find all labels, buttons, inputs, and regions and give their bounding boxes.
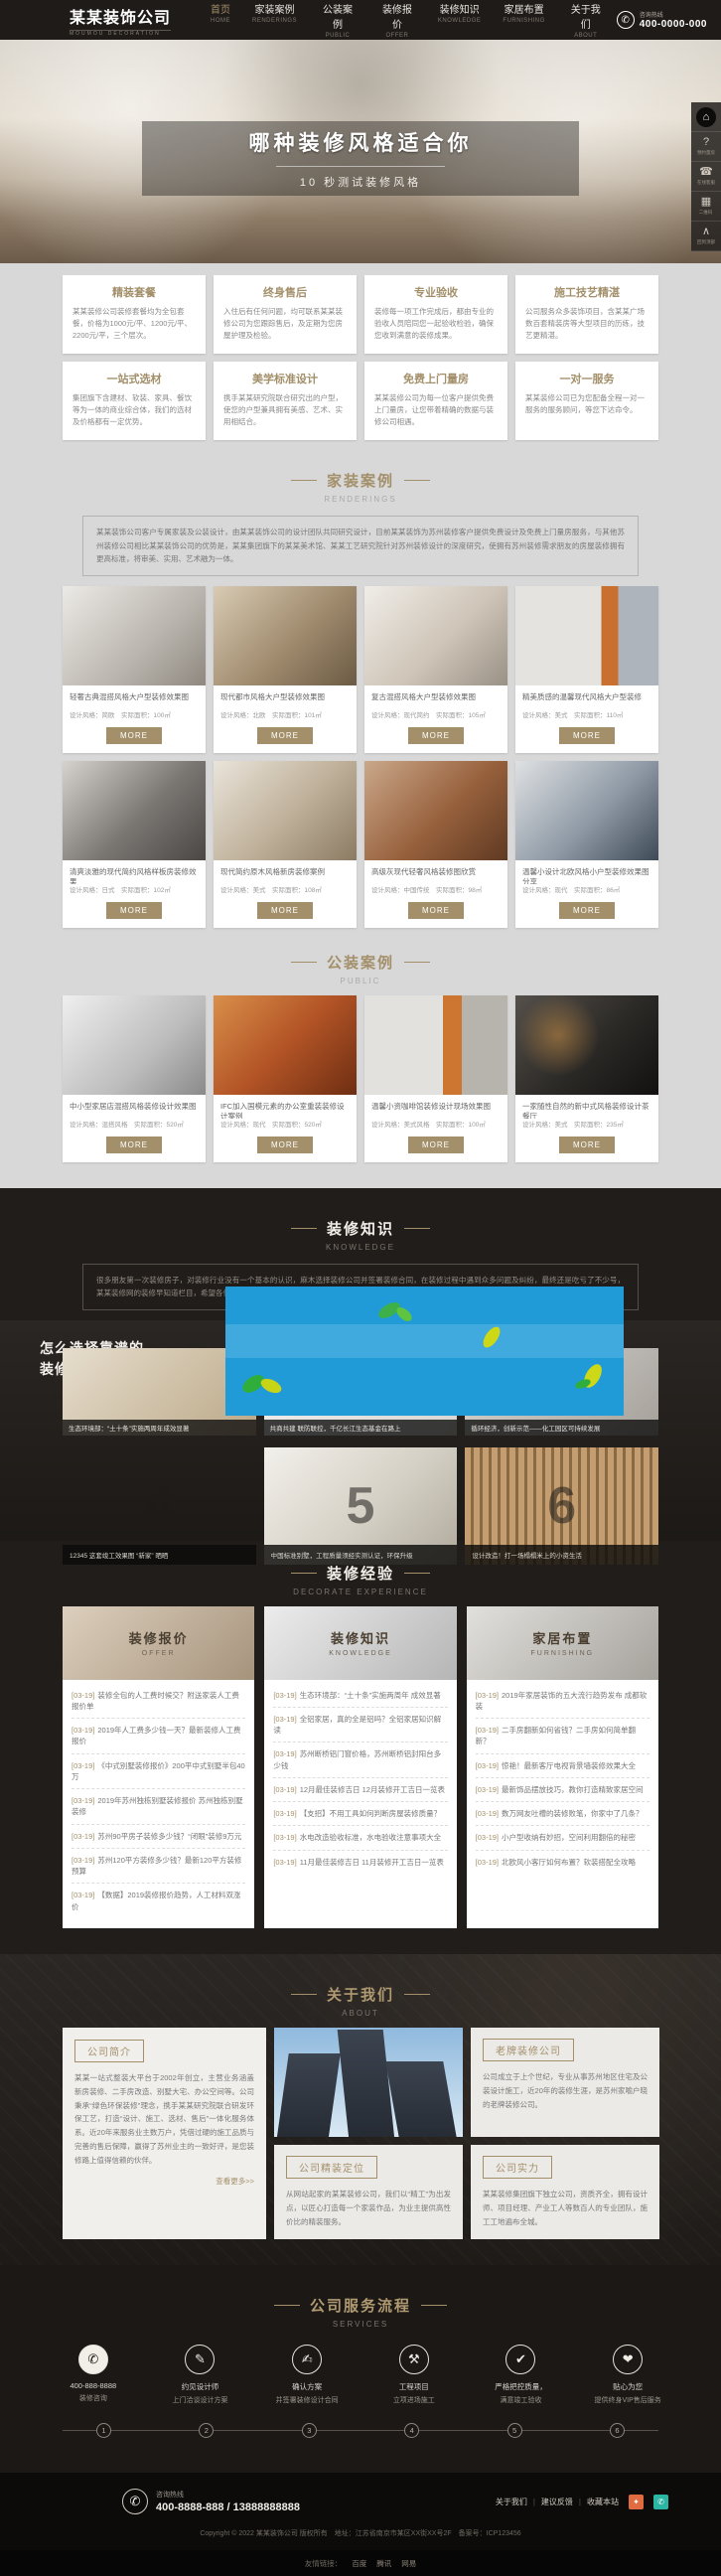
case-card[interactable]: 温馨小资咖啡馆装修设计现场效果图 设计风格：美式风格 实际面积：100㎡ MOR… xyxy=(364,995,507,1162)
link-separator: | xyxy=(533,2498,535,2506)
hero-title: 哪种装修风格适合你 xyxy=(249,127,473,157)
case-photo xyxy=(515,761,658,860)
heading-dash xyxy=(404,1994,430,1995)
heading-dash xyxy=(291,1228,317,1229)
article-link[interactable]: [03-19]生态环境部：“土十条”实施两周年 成效显著 xyxy=(273,1684,447,1708)
video-placeholder[interactable] xyxy=(225,1287,624,1416)
floating-toolbar: ⌂ ? 预约量房 ☎ 在线客服 ▦ 二维码 ∧ 回到顶部 xyxy=(691,102,721,251)
section-heading-services: 公司服务流程 SERVICES xyxy=(0,2279,721,2339)
article-link[interactable]: [03-19]2019年苏州独栋别墅装修报价 苏州独栋别墅装修 xyxy=(72,1789,245,1825)
case-photo xyxy=(63,995,206,1095)
main-nav: 首页 HOME 家装案例 RENDERINGS 公装案例 PUBLIC 装修报价… xyxy=(211,1,605,39)
feature-card: 免费上门量房 某某装修公司为每一位客户提供免费上门量房，让您带着精确的数据与装修… xyxy=(364,362,507,440)
leaf-icon xyxy=(374,1294,414,1328)
knowledge-banner: 怎么选择靠谱的 装修公司? 生态环境部：“土十条”实施两周年成效显著 共商共建 … xyxy=(0,1320,721,1541)
heading-dash xyxy=(404,1573,430,1574)
weibo-icon[interactable]: ✦ xyxy=(629,2495,644,2509)
article-link[interactable]: [03-19]苏州90平房子装修多少钱？“闭眼”装修9万元 xyxy=(72,1825,245,1849)
case-card[interactable]: 中小型家居店混搭风格装修设计效果图 设计风格：混搭风格 实际面积：520㎡ MO… xyxy=(63,995,206,1162)
experience-column-furnishing: 家居布置 FURNISHING [03-19]2019年家居装饰的五大流行趋势发… xyxy=(467,1606,658,1928)
case-photo xyxy=(515,586,658,685)
article-link[interactable]: [03-19]惊艳！最新客厅电视背景墙装修效果大全 xyxy=(476,1754,649,1778)
leaf-icon xyxy=(573,1356,613,1396)
more-button[interactable]: MORE xyxy=(106,902,162,919)
more-button[interactable]: MORE xyxy=(559,727,615,744)
carousel-slide[interactable]: 5 中国标准别墅，工程质量须经实测认证，环保升级 xyxy=(264,1447,458,1565)
qrcode-icon: ▦ xyxy=(701,197,711,208)
more-button[interactable]: MORE xyxy=(257,727,313,744)
step-number: 3 xyxy=(302,2423,317,2438)
case-card[interactable]: 现代简约原木风格新房装修案例 设计风格：美式 实际面积：108㎡ MORE xyxy=(214,761,357,928)
heading-dash xyxy=(291,962,317,963)
building-shape xyxy=(275,2053,340,2137)
about-grid: 公司简介 某某一站式整装大平台于2002年创立，主营业务涵盖新房装修、二手房改造… xyxy=(63,2028,658,2266)
company-intro-card: 公司简介 某某一站式整装大平台于2002年创立，主营业务涵盖新房装修、二手房改造… xyxy=(63,2028,266,2240)
case-card[interactable]: 高级灰现代轻奢风格装修图欣赏 设计风格：中国传统 实际面积：98㎡ MORE xyxy=(364,761,507,928)
knowledge-carousel: 4 12345 这套竣工效果图 “新家” 晒晒 5 中国标准别墅，工程质量须经实… xyxy=(63,1447,658,1565)
column-header[interactable]: 家居布置 FURNISHING xyxy=(467,1606,658,1680)
header-hotline: ✆ 咨询热线 400-0000-000 xyxy=(617,10,707,30)
case-photo xyxy=(515,995,658,1095)
article-link[interactable]: [03-19]水电改造验收标准，水电验收注意事项大全 xyxy=(273,1826,447,1850)
check-icon: ✔ xyxy=(505,2345,535,2374)
hero-banner[interactable]: 哪种装修风格适合你 10 秒测试装修风格 ⌂ ? 预约量房 ☎ 在线客服 ▦ 二… xyxy=(0,40,721,263)
heading-dash xyxy=(291,480,317,481)
case-photo xyxy=(214,761,357,860)
carousel-slide[interactable]: 4 12345 这套竣工效果图 “新家” 晒晒 xyxy=(63,1447,256,1565)
article-link[interactable]: [03-19]苏州120平方装修多少钱？最新120平方装修预算 xyxy=(72,1849,245,1885)
about-card-strength: 公司实力 某某装修集团旗下独立公司，资质齐全，拥有设计师、项目经理、产业工人等数… xyxy=(471,2145,659,2240)
heading-dash xyxy=(404,1228,430,1229)
logo-subtext: MOUMOU DECORATION xyxy=(70,30,171,37)
phone-icon: ✆ xyxy=(617,11,635,29)
more-button[interactable]: MORE xyxy=(257,902,313,919)
more-button[interactable]: MORE xyxy=(559,902,615,919)
article-link[interactable]: [03-19]装修全包的人工费时候交？附送家装人工费报价单 xyxy=(72,1684,245,1720)
feature-card: 专业验收 装修每一项工作完成后，都由专业的验收人员陪同您一起验收检验，确保您收到… xyxy=(364,275,507,354)
feature-section: 精装套餐 某某装修公司装修套餐均为全包套餐，价格为1000元/平、1200元/平… xyxy=(63,263,658,454)
phone-icon: ✆ xyxy=(78,2345,108,2374)
more-button[interactable]: MORE xyxy=(408,1136,464,1153)
experience-column-knowledge: 装修知识 KNOWLEDGE [03-19]生态环境部：“土十条”实施两周年 成… xyxy=(264,1606,456,1928)
feature-card: 施工技艺精湛 公司服务众多装饰项目，含某某广场数百套精装房等大型项目的历练，技艺… xyxy=(515,275,658,354)
service-step: ⚒ 工程项目 立项进场施工 xyxy=(363,2345,465,2405)
column-header[interactable]: 装修知识 KNOWLEDGE xyxy=(264,1606,456,1680)
leaf-icon xyxy=(239,1364,283,1404)
hotline-number: 400-0000-000 xyxy=(640,19,707,30)
feature-card: 精装套餐 某某装修公司装修套餐均为全包套餐，价格为1000元/平、1200元/平… xyxy=(63,275,206,354)
page: 某某装饰公司 MOUMOU DECORATION 首页 HOME 家装案例 RE… xyxy=(0,0,721,2576)
case-photo xyxy=(364,761,507,860)
heading-dash xyxy=(404,480,430,481)
more-button[interactable]: MORE xyxy=(106,1136,162,1153)
contract-icon: ✍ xyxy=(292,2345,322,2374)
tools-icon: ⚒ xyxy=(399,2345,429,2374)
service-step: ✍ 确认方案 并签署装修设计合同 xyxy=(256,2345,358,2405)
section-heading-public: 公装案例 PUBLIC xyxy=(0,936,721,995)
feature-card: 一对一服务 某某装修公司已为您配备全程一对一服务的服务顾问，等您下达命令。 xyxy=(515,362,658,440)
case-photo xyxy=(364,586,507,685)
step-number: 5 xyxy=(507,2423,522,2438)
more-button[interactable]: MORE xyxy=(257,1136,313,1153)
rail-home-button[interactable]: ⌂ xyxy=(691,102,721,132)
footer-link-about[interactable]: 关于我们 xyxy=(496,2497,527,2507)
building-shape xyxy=(385,2061,459,2137)
logo-text: 某某装饰公司 xyxy=(70,4,171,28)
article-link[interactable]: [03-19]12月最佳装修吉日 12月装修开工吉日一览表 xyxy=(273,1778,447,1802)
copyright: Copyright © 2022 某某装饰公司 版权所有 地址：江苏省南京市某区… xyxy=(0,2514,721,2550)
footer: ✆ 咨询热线 400-8888-888 / 13888888888 关于我们 |… xyxy=(0,2473,721,2576)
service-steps: ✆ 400-888-8888 装修咨询 ✎ 约见设计师 上门洽谈设计方案 ✍ 确… xyxy=(43,2345,678,2405)
case-card[interactable]: 现代都市风格大户型装修效果图 设计风格：北欧 实际面积：101㎡ MORE xyxy=(214,586,357,753)
step-number: 4 xyxy=(404,2423,419,2438)
leaf-icon xyxy=(474,1320,509,1354)
step-number: 6 xyxy=(610,2423,625,2438)
nav-item-public[interactable]: 公装案例 PUBLIC xyxy=(319,1,357,39)
footer-link-bookmark[interactable]: 收藏本站 xyxy=(587,2497,619,2507)
more-button[interactable]: MORE xyxy=(408,727,464,744)
case-card[interactable]: 一家随性自然的新中式风格装修设计茶餐厅 设计风格：美式 实际面积：235㎡ MO… xyxy=(515,995,658,1162)
nav-item-home[interactable]: 首页 HOME xyxy=(211,1,230,39)
feature-card: 一站式选材 集团旗下含建材、软装、家具、餐饮等为一体的商业综合体，我们的选材及价… xyxy=(63,362,206,440)
link-separator: | xyxy=(579,2498,581,2506)
article-link[interactable]: [03-19]11月最佳装修吉日 11月装修开工吉日一览表 xyxy=(273,1851,447,1874)
footer-link-feedback[interactable]: 建议反馈 xyxy=(541,2497,573,2507)
case-card[interactable]: 轻奢古典混搭风格大户型装修效果图 设计风格：简欧 实际面积：100㎡ MORE xyxy=(63,586,206,753)
rail-service-button[interactable]: ☎ 在线客服 xyxy=(691,162,721,192)
heart-icon: ❤ xyxy=(613,2345,643,2374)
step-number: 1 xyxy=(96,2423,111,2438)
article-link[interactable]: [03-19]数万网友吐槽的装修败笔，你家中了几条？ xyxy=(476,1802,649,1826)
nav-item-about[interactable]: 关于我们 ABOUT xyxy=(567,1,605,39)
header: 某某装饰公司 MOUMOU DECORATION 首页 HOME 家装案例 RE… xyxy=(0,0,721,40)
nav-item-knowledge[interactable]: 装修知识 KNOWLEDGE xyxy=(438,1,482,39)
article-link[interactable]: [03-19]小户型收纳有妙招，空间利用翻倍的秘密 xyxy=(476,1826,649,1850)
nav-item-furnishing[interactable]: 家居布置 FURNISHING xyxy=(503,1,544,39)
article-link[interactable]: [03-19]【支招】不用工具如何判断房屋装修质量？ xyxy=(273,1802,447,1826)
rail-qrcode-button[interactable]: ▦ 二维码 xyxy=(691,192,721,222)
about-card-history: 老牌装修公司 公司成立于上个世纪，专业从事苏州地区住宅及公装设计施工，近20年的… xyxy=(471,2028,659,2137)
friend-link[interactable]: 腾讯 xyxy=(376,2558,391,2569)
experience-column-offer: 装修报价 OFFER [03-19]装修全包的人工费时候交？附送家装人工费报价单… xyxy=(63,1606,254,1928)
video-strip xyxy=(225,1324,624,1358)
article-link[interactable]: [03-19]苏州断桥铝门窗价格，苏州断桥铝封阳台多少钱 xyxy=(273,1743,447,1778)
case-photo xyxy=(214,586,357,685)
heading-dash xyxy=(404,962,430,963)
experience-columns: 装修报价 OFFER [03-19]装修全包的人工费时候交？附送家装人工费报价单… xyxy=(63,1606,658,1954)
more-button[interactable]: MORE xyxy=(408,902,464,919)
section-heading-renderings: 家装案例 RENDERINGS xyxy=(0,454,721,514)
friend-link[interactable]: 网易 xyxy=(401,2558,416,2569)
nav-item-renderings[interactable]: 家装案例 RENDERINGS xyxy=(252,1,297,39)
case-card[interactable]: 温馨小设计北欧风格小户型装修效果图分享 设计风格：现代 实际面积：86㎡ MOR… xyxy=(515,761,658,928)
article-link[interactable]: [03-19]2019年家居装饰的五大流行趋势发布 成都软装 xyxy=(476,1684,649,1720)
case-photo xyxy=(63,586,206,685)
service-step: ✔ 严格把控质量， 满意竣工验收 xyxy=(471,2345,572,2405)
arrow-up-icon: ∧ xyxy=(702,227,710,237)
headset-icon: ☎ xyxy=(699,167,713,178)
pencil-icon: ✎ xyxy=(185,2345,215,2374)
about-card-position: 公司精装定位 从网站起家的某某装修公司，我们以“精工”为出发点，以匠心打造每一个… xyxy=(274,2145,463,2240)
question-icon: ? xyxy=(703,137,709,148)
step-number: 2 xyxy=(199,2423,214,2438)
more-button[interactable]: MORE xyxy=(559,1136,615,1153)
heading-dash xyxy=(291,1573,317,1574)
news-slider: 生态环境部：“土十条”实施两周年成效显著 共商共建 联防联控，千亿长江生态基金在… xyxy=(63,1348,658,1436)
case-card[interactable]: 精美质感的温馨现代风格大户型装修 设计风格：美式 实际面积：110㎡ MORE xyxy=(515,586,658,753)
carousel-slide[interactable]: 6 设计改造！打一场榻榻米上的小资生活 xyxy=(465,1447,658,1565)
case-photo xyxy=(63,761,206,860)
wechat-icon[interactable]: ✆ xyxy=(653,2495,668,2509)
hero-text-band: 哪种装修风格适合你 10 秒测试装修风格 xyxy=(142,121,579,196)
phone-icon: ✆ xyxy=(122,2489,148,2514)
renderings-intro-box: 某某装饰公司客户专属家装及公装设计，由某某装饰公司的设计团队共同研究设计，目前某… xyxy=(82,516,639,576)
building-photo xyxy=(274,2028,463,2137)
article-link[interactable]: [03-19]北欧风小客厅如何布置？软装搭配全攻略 xyxy=(476,1851,649,1874)
read-more-link[interactable]: 查看更多>> xyxy=(74,2176,254,2187)
hero-subtitle: 10 秒测试装修风格 xyxy=(276,166,445,190)
building-shape xyxy=(338,2030,396,2137)
section-heading-knowledge: 装修知识 KNOWLEDGE xyxy=(0,1202,721,1262)
case-card[interactable]: IFC加入国模元素的办公室重装装修设计案例 设计风格：现代 实际面积：520㎡ … xyxy=(214,995,357,1162)
case-photo xyxy=(214,995,357,1095)
footer-links: 关于我们 | 建议反馈 | 收藏本站 ✦ ✆ xyxy=(496,2495,668,2509)
case-card[interactable]: 清爽淡雅的现代简约风格样板房装修效果 设计风格：日式 实际面积：102㎡ MOR… xyxy=(63,761,206,928)
article-link[interactable]: [03-19]最新饰品摆放技巧，教你打造精致家居空间 xyxy=(476,1778,649,1802)
heading-dash xyxy=(274,2305,300,2306)
article-link[interactable]: [03-19]【数据】2019装修报价趋势，人工材料双涨价 xyxy=(72,1884,245,1918)
service-step: ❤ 贴心为您 提供终身VIP售后服务 xyxy=(577,2345,678,2405)
heading-dash xyxy=(421,2305,447,2306)
article-link[interactable]: [03-19]二手房翻新如何省钱？二手房如何简单翻新？ xyxy=(476,1719,649,1754)
heading-dash xyxy=(291,1994,317,1995)
logo[interactable]: 某某装饰公司 MOUMOU DECORATION xyxy=(70,4,171,37)
section-heading-about: 关于我们 ABOUT xyxy=(0,1968,721,2028)
nav-item-offer[interactable]: 装修报价 OFFER xyxy=(378,1,416,39)
friend-link[interactable]: 百度 xyxy=(352,2558,366,2569)
footer-hotline: ✆ 咨询热线 400-8888-888 / 13888888888 xyxy=(122,2489,300,2514)
friend-links: 友情链接： 百度 腾讯 网易 xyxy=(0,2550,721,2576)
footer-phone-number: 400-8888-888 / 13888888888 xyxy=(156,2501,300,2513)
rail-booking-button[interactable]: ? 预约量房 xyxy=(691,132,721,162)
service-step: ✆ 400-888-8888 装修咨询 xyxy=(43,2345,144,2405)
intro-label: 公司简介 xyxy=(74,2040,144,2062)
article-link[interactable]: [03-19]2019年人工费多少钱一天？最新装修人工费报价 xyxy=(72,1719,245,1754)
service-step: ✎ 约见设计师 上门洽谈设计方案 xyxy=(150,2345,251,2405)
case-card[interactable]: 复古混搭风格大户型装修效果图 设计风格：现代简约 实际面积：105㎡ MORE xyxy=(364,586,507,753)
column-header[interactable]: 装修报价 OFFER xyxy=(63,1606,254,1680)
feature-card: 终身售后 入住后有任何问题，均可联系某某装修公司为您跟踪售后，及定期为您房屋护理… xyxy=(214,275,357,354)
rail-backtop-button[interactable]: ∧ 回到顶部 xyxy=(691,222,721,251)
service-timeline: 1 2 3 4 5 6 xyxy=(63,2423,658,2439)
feature-card: 美学标准设计 携手某某研究院联合研究出的户型，使您的户型兼具拥有美感、艺术、实用… xyxy=(214,362,357,440)
more-button[interactable]: MORE xyxy=(106,727,162,744)
home-icon: ⌂ xyxy=(696,107,716,127)
article-link[interactable]: [03-19]《中式别墅装修报价》200平中式别墅半包40万 xyxy=(72,1754,245,1790)
article-link[interactable]: [03-19]全铝家居，真的全是铝吗？全铝家居知识解读 xyxy=(273,1708,447,1743)
case-photo xyxy=(364,995,507,1095)
